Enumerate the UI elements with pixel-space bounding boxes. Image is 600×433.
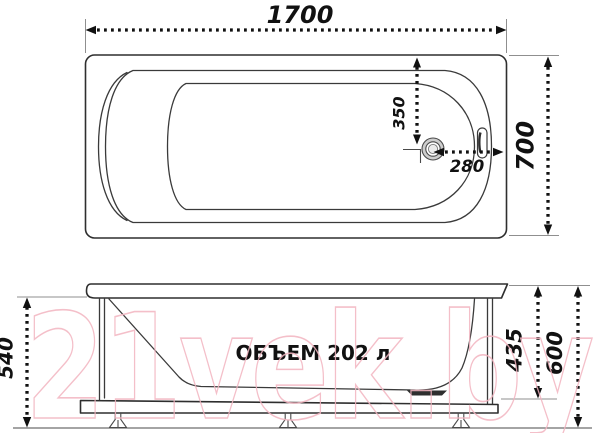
drain <box>422 138 444 160</box>
site-watermark: 21vek.by <box>25 283 592 433</box>
body-height-value: 540 <box>0 337 18 379</box>
width-value: 700 <box>512 121 540 171</box>
drain-top-offset-value: 350 <box>390 96 409 129</box>
dim-length-1700: 1700 <box>86 1 507 53</box>
drawing-canvas: 1700 700 350 280 ОБЪЕМ <box>0 0 600 433</box>
drain-right-offset-value: 280 <box>450 157 484 176</box>
dim-width-700: 700 <box>509 56 559 236</box>
top-view <box>86 55 507 238</box>
bathtub-dimension-drawing: 1700 700 350 280 ОБЪЕМ <box>0 0 600 433</box>
length-value: 1700 <box>267 1 334 29</box>
